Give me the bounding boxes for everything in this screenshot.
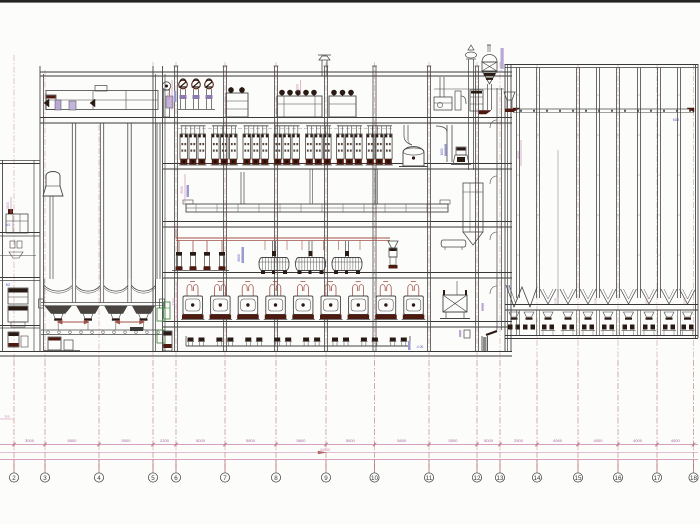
svg-text:5800: 5800 — [397, 438, 407, 443]
svg-text:3200: 3200 — [172, 298, 176, 306]
svg-text:3600: 3600 — [237, 254, 241, 262]
svg-text:9: 9 — [324, 475, 328, 482]
svg-text:3000: 3000 — [25, 438, 35, 443]
svg-text:5500: 5500 — [449, 438, 459, 443]
svg-text:4000: 4000 — [594, 438, 604, 443]
svg-text:4: 4 — [97, 475, 101, 482]
svg-text:5800: 5800 — [246, 438, 256, 443]
svg-text:5500: 5500 — [122, 438, 132, 443]
svg-text:M2: M2 — [6, 283, 11, 287]
svg-text:4000: 4000 — [671, 438, 681, 443]
svg-text:15: 15 — [575, 475, 582, 482]
svg-text:300: 300 — [4, 415, 9, 419]
svg-text:13: 13 — [497, 475, 504, 482]
svg-text:6: 6 — [174, 475, 178, 482]
svg-text:2500: 2500 — [594, 297, 598, 304]
svg-text:18: 18 — [690, 475, 697, 482]
svg-text:-0.00: -0.00 — [416, 345, 423, 349]
svg-text:600: 600 — [507, 285, 511, 290]
svg-text:2500: 2500 — [554, 297, 558, 304]
svg-text:2: 2 — [12, 475, 16, 482]
svg-text:10: 10 — [371, 475, 378, 482]
svg-text:5000: 5000 — [346, 438, 356, 443]
svg-text:34000: 34000 — [320, 448, 330, 452]
svg-text:3: 3 — [43, 475, 47, 482]
svg-text:5: 5 — [151, 475, 155, 482]
svg-text:8: 8 — [274, 475, 278, 482]
svg-text:1800: 1800 — [6, 202, 10, 210]
svg-text:7: 7 — [223, 475, 227, 482]
svg-text:M1: M1 — [6, 223, 11, 227]
svg-text:1200: 1200 — [296, 84, 300, 92]
svg-text:4060: 4060 — [553, 438, 563, 443]
svg-text:5600: 5600 — [297, 438, 307, 443]
svg-text:12: 12 — [474, 475, 481, 482]
svg-text:11: 11 — [426, 475, 433, 482]
svg-text:2200: 2200 — [160, 438, 170, 443]
svg-text:2500: 2500 — [683, 297, 687, 304]
svg-text:2500: 2500 — [514, 438, 524, 443]
svg-text:2500: 2500 — [645, 297, 649, 304]
svg-text:5500: 5500 — [68, 438, 78, 443]
svg-text:M26: M26 — [673, 118, 679, 122]
svg-text:3600: 3600 — [180, 186, 184, 194]
svg-text:14: 14 — [534, 475, 541, 482]
svg-text:2600: 2600 — [167, 92, 171, 100]
svg-text:4000: 4000 — [633, 438, 643, 443]
svg-text:1600: 1600 — [440, 148, 444, 155]
svg-text:5000: 5000 — [196, 438, 206, 443]
svg-text:17: 17 — [654, 475, 661, 482]
svg-text:5000: 5000 — [484, 438, 494, 443]
svg-text:16: 16 — [615, 475, 622, 482]
